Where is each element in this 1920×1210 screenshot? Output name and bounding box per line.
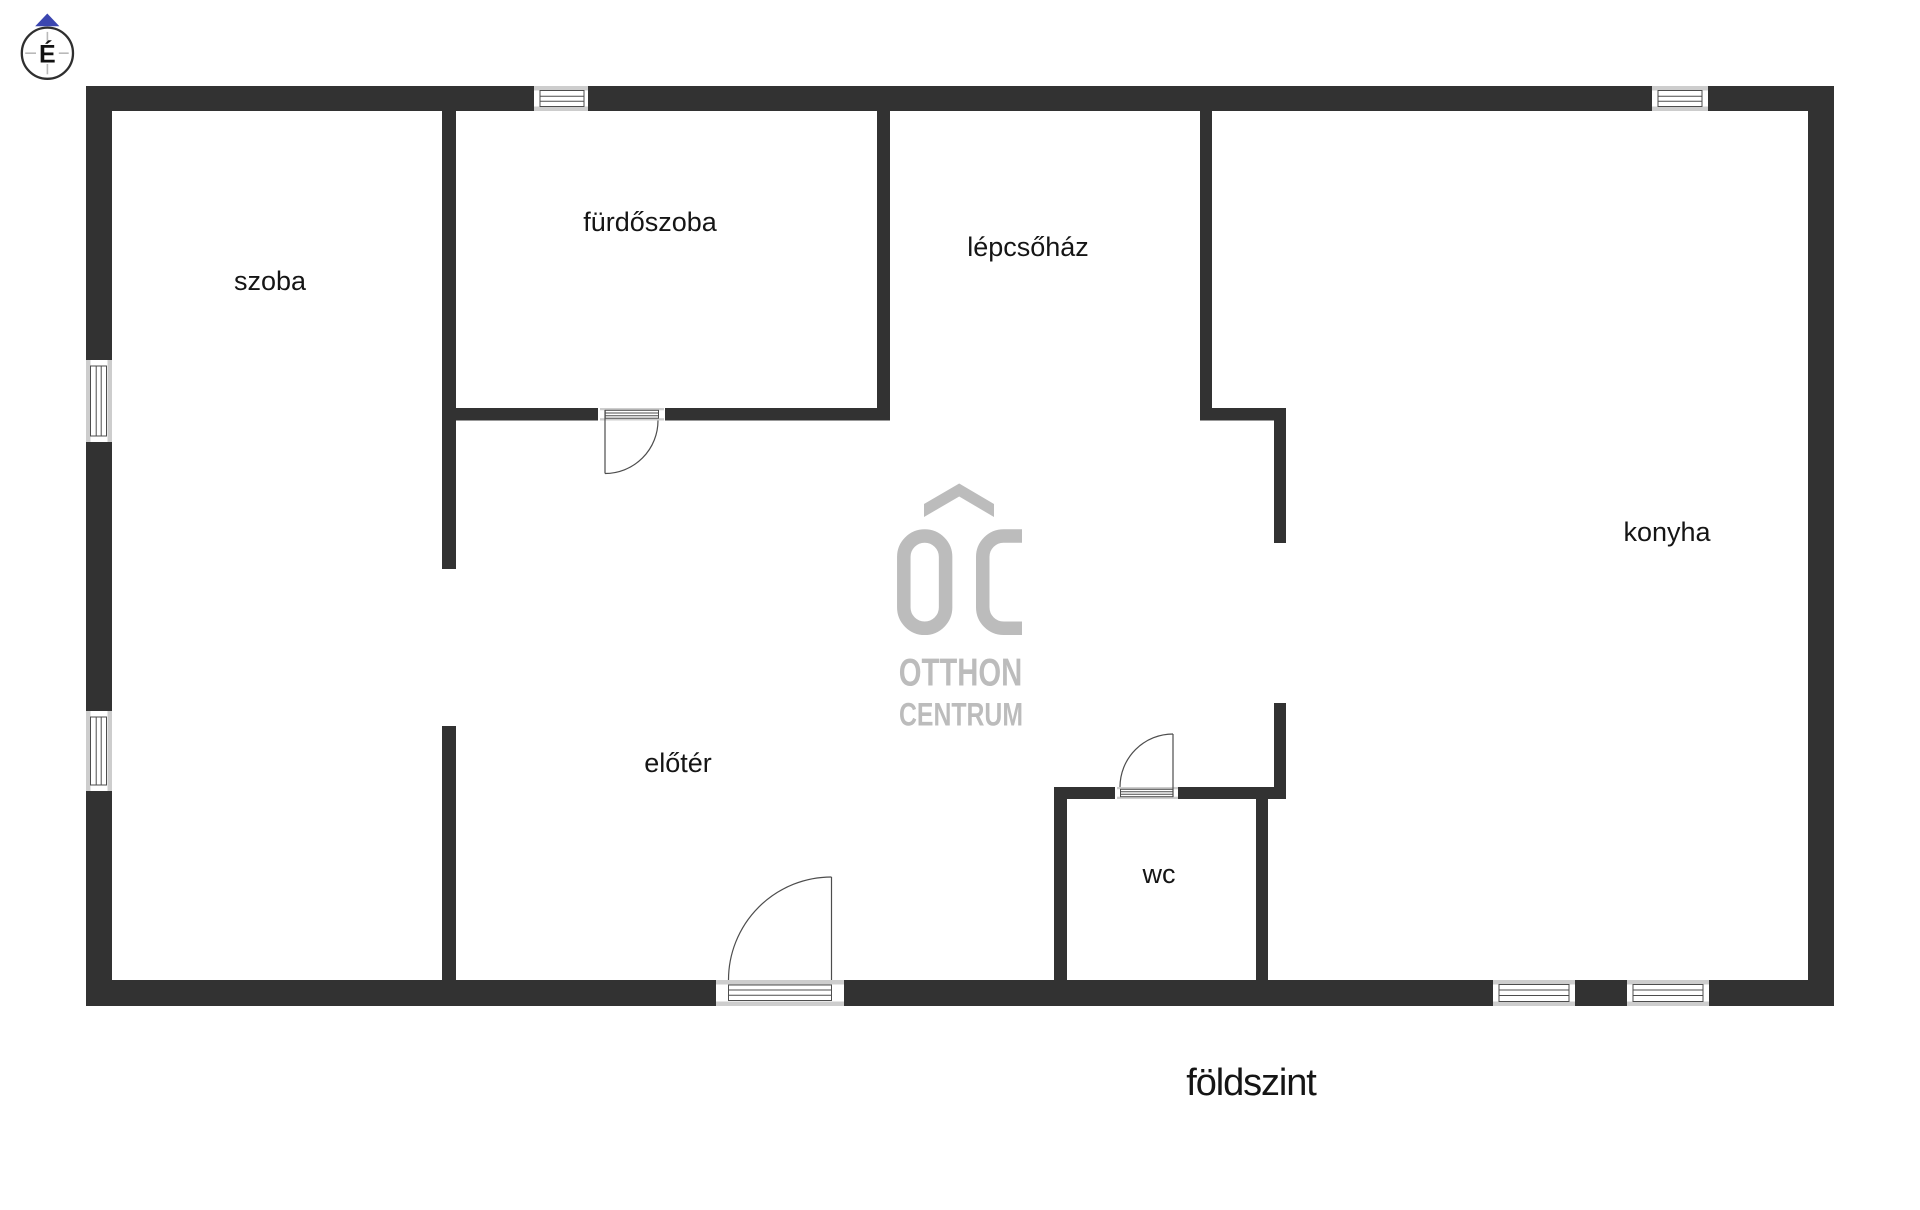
- svg-text:szoba: szoba: [234, 266, 307, 296]
- svg-text:előtér: előtér: [644, 748, 712, 778]
- svg-text:É: É: [39, 40, 56, 69]
- svg-text:lépcsőház: lépcsőház: [967, 232, 1089, 262]
- svg-text:földszint: földszint: [1186, 1062, 1317, 1104]
- svg-text:OTTHON: OTTHON: [899, 652, 1023, 695]
- svg-text:wc: wc: [1142, 859, 1176, 889]
- svg-text:fürdőszoba: fürdőszoba: [583, 207, 718, 237]
- svg-text:CENTRUM: CENTRUM: [899, 696, 1023, 733]
- svg-text:konyha: konyha: [1623, 517, 1711, 547]
